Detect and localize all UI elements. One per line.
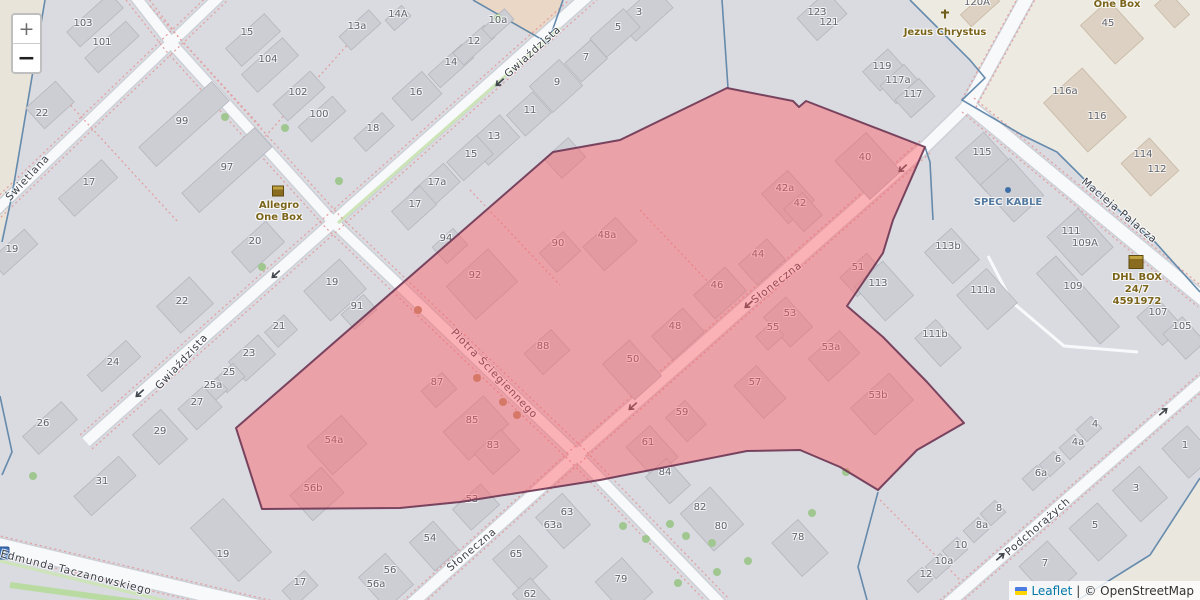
house-number-label: 84 bbox=[659, 468, 672, 478]
house-number-label: 40 bbox=[859, 153, 872, 163]
house-number-label: 112 bbox=[1147, 165, 1166, 175]
house-number-label: 117 bbox=[903, 90, 922, 100]
house-number-label: 12 bbox=[920, 570, 933, 580]
house-number-label: 80 bbox=[715, 522, 728, 532]
house-number-label: 88 bbox=[537, 342, 550, 352]
house-number-label: 54 bbox=[424, 534, 437, 544]
street-name-label: Piotra Ściegiennego bbox=[449, 327, 540, 420]
house-number-label: 51 bbox=[852, 263, 865, 273]
house-number-label: 8a bbox=[976, 521, 989, 531]
house-number-label: 14A bbox=[388, 10, 408, 20]
house-number-label: 48a bbox=[598, 231, 617, 241]
house-number-label: 5 bbox=[615, 23, 621, 33]
house-number-label: 92 bbox=[469, 271, 482, 281]
house-number-label: 19 bbox=[326, 278, 339, 288]
house-number-label: 12 bbox=[468, 37, 481, 47]
house-number-label: 111 bbox=[1061, 227, 1080, 237]
house-number-label: 31 bbox=[96, 477, 109, 487]
house-number-label: 56b bbox=[303, 484, 322, 494]
house-number-label: 3 bbox=[636, 8, 642, 18]
house-number-label: 22 bbox=[176, 297, 189, 307]
house-number-label: 25 bbox=[223, 368, 236, 378]
house-number-label: 20 bbox=[249, 237, 262, 247]
house-number-label: 119 bbox=[872, 62, 891, 72]
poi-label-allegro-one-box: One Box bbox=[256, 213, 303, 223]
house-number-label: 4 bbox=[1092, 420, 1098, 430]
house-number-label: 97 bbox=[221, 163, 234, 173]
street-name-label: Słoneczna bbox=[750, 260, 804, 306]
street-name-label: Edmunda Taczanowskiego bbox=[0, 549, 153, 597]
house-number-label: 17 bbox=[83, 178, 96, 188]
house-number-label: 87 bbox=[431, 378, 444, 388]
street-name-label: Macieja Palacza bbox=[1079, 177, 1158, 246]
map-canvas[interactable]: 1031011510413a14A10210018229997171912141… bbox=[0, 0, 1200, 600]
poi-label-dhl-box: DHL BOX bbox=[1112, 273, 1162, 283]
house-number-label: 8 bbox=[996, 504, 1002, 514]
house-number-label: 9 bbox=[554, 78, 560, 88]
house-number-label: 62 bbox=[524, 590, 537, 600]
house-number-label: 53b bbox=[868, 391, 887, 401]
house-number-label: 45 bbox=[1102, 19, 1115, 29]
street-name-label: Świetlana bbox=[4, 153, 52, 203]
house-number-label: 6a bbox=[1035, 469, 1048, 479]
leaflet-link[interactable]: Leaflet bbox=[1031, 584, 1072, 598]
street-name-label: Podchorążych bbox=[1003, 496, 1072, 558]
street-name-label: Gwiaździsta bbox=[154, 332, 210, 391]
street-name-label: Słoneczna bbox=[445, 526, 498, 573]
house-number-label: 46 bbox=[711, 281, 724, 291]
house-number-label: 111b bbox=[922, 330, 947, 340]
house-number-label: 42 bbox=[794, 199, 807, 209]
house-number-label: 79 bbox=[615, 575, 628, 585]
house-number-label: 25a bbox=[204, 381, 223, 391]
house-number-label: 121 bbox=[819, 18, 838, 28]
ukraine-flag-icon bbox=[1015, 587, 1027, 595]
house-number-label: 82 bbox=[694, 503, 707, 513]
house-number-label: 111a bbox=[970, 286, 995, 296]
house-number-label: 116 bbox=[1087, 112, 1106, 122]
house-number-label: 17 bbox=[294, 578, 307, 588]
house-number-label: 113 bbox=[868, 279, 887, 289]
industrial-site-icon bbox=[1005, 187, 1011, 193]
house-number-label: 18 bbox=[367, 124, 380, 134]
house-number-label: 59 bbox=[676, 408, 689, 418]
house-number-label: 7 bbox=[1042, 559, 1048, 569]
house-number-label: 61 bbox=[642, 438, 655, 448]
house-number-label: 10a bbox=[489, 16, 508, 26]
house-number-label: 56a bbox=[367, 580, 386, 590]
house-number-label: 53 bbox=[784, 309, 797, 319]
house-number-label: 7 bbox=[583, 53, 589, 63]
poi-label-dhl-box: 24/7 bbox=[1125, 285, 1150, 295]
house-number-label: 4a bbox=[1072, 438, 1085, 448]
house-number-label: 65 bbox=[510, 550, 523, 560]
house-number-label: 114 bbox=[1133, 150, 1152, 160]
house-number-label: 24 bbox=[107, 358, 120, 368]
house-number-label: 109A bbox=[1072, 239, 1098, 249]
house-number-label: 53 bbox=[466, 495, 479, 505]
street-name-label: Gwiaździsta bbox=[503, 24, 563, 80]
house-number-label: 50 bbox=[627, 355, 640, 365]
house-number-label: 113b bbox=[935, 242, 960, 252]
house-number-label: 116a bbox=[1052, 87, 1077, 97]
house-number-label: 26 bbox=[37, 419, 50, 429]
house-number-label: 107 bbox=[1148, 308, 1167, 318]
house-number-label: 54a bbox=[325, 436, 344, 446]
house-number-label: 53a bbox=[822, 343, 841, 353]
poi-label-dhl-box: 4591972 bbox=[1113, 297, 1162, 307]
house-number-label: 1 bbox=[1182, 441, 1188, 451]
dhl-parcel-locker-icon bbox=[1129, 255, 1144, 269]
house-number-label: 101 bbox=[92, 38, 111, 48]
christian-cross-icon bbox=[940, 10, 950, 19]
house-number-label: 55 bbox=[767, 323, 780, 333]
house-number-label: 15 bbox=[465, 150, 478, 160]
house-number-label: 13 bbox=[488, 132, 501, 142]
allegro-parcel-locker-icon bbox=[272, 186, 284, 197]
house-number-label: 23 bbox=[243, 349, 256, 359]
house-number-label: 63a bbox=[544, 521, 563, 531]
house-number-label: 85 bbox=[466, 416, 479, 426]
house-number-label: 42a bbox=[776, 184, 795, 194]
zoom-out-button[interactable]: − bbox=[13, 44, 40, 72]
house-number-label: 21 bbox=[273, 322, 286, 332]
house-number-label: 99 bbox=[176, 117, 189, 127]
house-number-label: 78 bbox=[792, 533, 805, 543]
house-number-label: 19 bbox=[6, 245, 19, 255]
house-number-label: 115 bbox=[972, 148, 991, 158]
attribution-bar: Leaflet | © OpenStreetMap bbox=[1009, 581, 1200, 600]
house-number-label: 83 bbox=[487, 441, 500, 451]
attribution-separator: | bbox=[1076, 584, 1080, 598]
house-number-label: 91 bbox=[351, 302, 364, 312]
house-number-label: 27 bbox=[191, 398, 204, 408]
house-number-label: 17a bbox=[428, 178, 447, 188]
house-number-label: 15 bbox=[241, 28, 254, 38]
openstreetmap-link[interactable]: © OpenStreetMap bbox=[1084, 584, 1194, 598]
house-number-label: 6 bbox=[1055, 455, 1061, 465]
house-number-label: 44 bbox=[752, 250, 765, 260]
house-number-label: 56 bbox=[384, 566, 397, 576]
house-number-label: 90 bbox=[552, 239, 565, 249]
map-label-layer: 1031011510413a14A10210018229997171912141… bbox=[0, 0, 1200, 600]
house-number-label: 22 bbox=[36, 109, 49, 119]
house-number-label: 10a bbox=[935, 557, 954, 567]
house-number-label: 102 bbox=[288, 88, 307, 98]
house-number-label: 63 bbox=[561, 508, 574, 518]
house-number-label: 17 bbox=[409, 200, 422, 210]
house-number-label: 104 bbox=[258, 55, 277, 65]
poi-label-one-box: One Box bbox=[1094, 0, 1141, 10]
house-number-label: 19 bbox=[217, 550, 230, 560]
house-number-label: 94 bbox=[440, 234, 453, 244]
house-number-label: 120A bbox=[964, 0, 990, 8]
house-number-label: 105 bbox=[1172, 322, 1191, 332]
zoom-control: + − bbox=[11, 13, 42, 74]
poi-label-jezus-chrystus: Jezus Chrystus bbox=[904, 28, 987, 38]
house-number-label: 5 bbox=[1092, 521, 1098, 531]
poi-label-spec-kable: SPEC KABLE bbox=[974, 198, 1043, 208]
house-number-label: 14 bbox=[445, 58, 458, 68]
house-number-label: 11 bbox=[524, 106, 537, 116]
house-number-label: 109 bbox=[1063, 282, 1082, 292]
poi-label-allegro-one-box: Allegro bbox=[259, 201, 299, 211]
house-number-label: 10 bbox=[955, 541, 968, 551]
house-number-label: 3 bbox=[1133, 484, 1139, 494]
house-number-label: 103 bbox=[73, 19, 92, 29]
zoom-in-button[interactable]: + bbox=[13, 15, 40, 44]
house-number-label: 48 bbox=[669, 322, 682, 332]
house-number-label: 100 bbox=[309, 110, 328, 120]
house-number-label: 13a bbox=[348, 22, 367, 32]
house-number-label: 16 bbox=[410, 88, 423, 98]
house-number-label: 29 bbox=[154, 427, 167, 437]
house-number-label: 117a bbox=[885, 76, 910, 86]
house-number-label: 57 bbox=[749, 378, 762, 388]
